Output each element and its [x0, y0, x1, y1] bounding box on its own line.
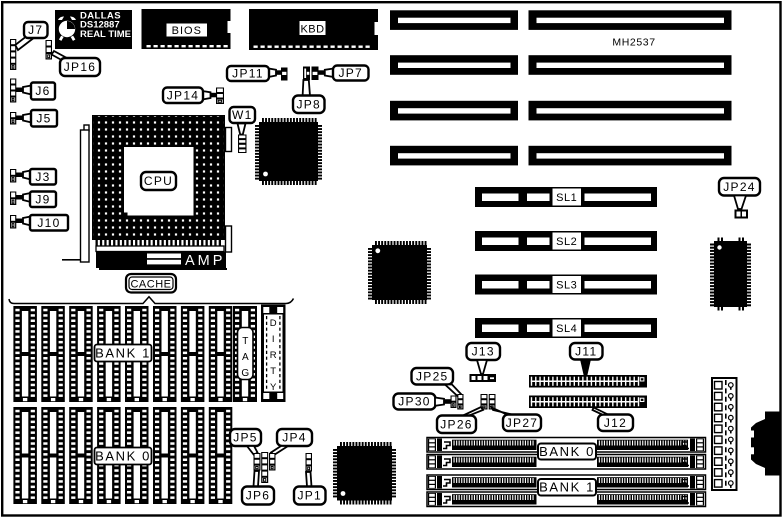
svg-text:SL2: SL2: [556, 236, 577, 248]
svg-text:JP16: JP16: [64, 60, 97, 74]
svg-text:Y: Y: [270, 382, 277, 393]
svg-text:J3: J3: [35, 170, 50, 184]
svg-text:CPU: CPU: [144, 174, 173, 188]
svg-text:J12: J12: [604, 416, 627, 430]
svg-text:SL1: SL1: [556, 192, 577, 204]
svg-text:JP14: JP14: [167, 88, 200, 102]
svg-text:CACHE: CACHE: [130, 279, 171, 291]
svg-text:G: G: [241, 368, 249, 379]
svg-text:J9: J9: [35, 192, 50, 206]
svg-text:JP27: JP27: [506, 416, 539, 430]
svg-text:J7: J7: [28, 23, 43, 37]
svg-text:JP11: JP11: [232, 67, 264, 81]
svg-text:JP25: JP25: [416, 369, 449, 383]
svg-text:J10: J10: [37, 216, 60, 230]
svg-text:JP7: JP7: [338, 66, 363, 80]
svg-text:T: T: [270, 366, 276, 377]
svg-text:R: R: [270, 350, 277, 361]
svg-text:JP5: JP5: [233, 431, 258, 445]
svg-text:REAL TIME: REAL TIME: [80, 29, 131, 40]
svg-text:A: A: [242, 352, 249, 363]
svg-text:JP26: JP26: [440, 417, 473, 431]
svg-text:JP30: JP30: [398, 395, 431, 409]
svg-text:JP6: JP6: [246, 489, 271, 503]
svg-text:J5: J5: [36, 111, 51, 125]
svg-text:J11: J11: [575, 344, 597, 358]
svg-text:J13: J13: [472, 345, 495, 359]
svg-text:KBD: KBD: [300, 24, 324, 36]
svg-text:SL4: SL4: [556, 323, 577, 335]
svg-text:BANK 1: BANK 1: [95, 345, 151, 360]
svg-text:BIOS: BIOS: [172, 25, 202, 37]
svg-text:JP8: JP8: [296, 97, 321, 111]
svg-text:I: I: [272, 334, 275, 345]
svg-text:SL3: SL3: [556, 280, 577, 292]
svg-text:JP4: JP4: [282, 431, 307, 445]
svg-text:J6: J6: [35, 84, 50, 98]
svg-text:BANK 0: BANK 0: [95, 448, 151, 463]
svg-text:JP24: JP24: [723, 180, 756, 194]
svg-text:JP1: JP1: [297, 489, 322, 503]
svg-text:W1: W1: [232, 108, 253, 122]
svg-text:BANK 0: BANK 0: [539, 444, 595, 459]
svg-text:D: D: [270, 318, 277, 329]
svg-text:T: T: [242, 336, 248, 347]
svg-text:BANK 1: BANK 1: [539, 480, 595, 495]
svg-text:MH2537: MH2537: [612, 37, 655, 49]
svg-text:AMP: AMP: [185, 253, 225, 269]
